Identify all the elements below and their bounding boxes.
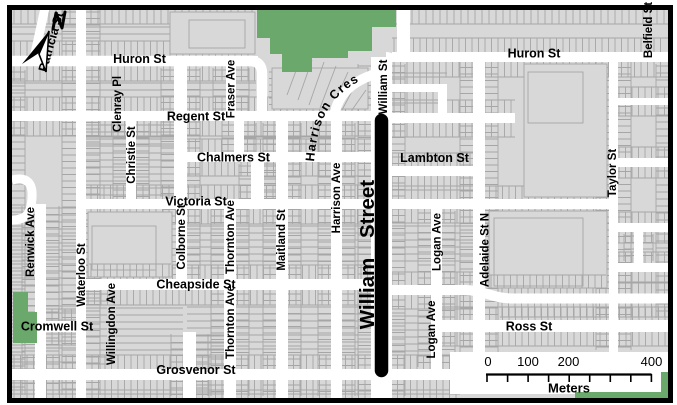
svg-text:Ross St: Ross St: [506, 320, 553, 334]
svg-text:Thornton Ave: Thornton Ave: [225, 285, 237, 359]
svg-text:Clenray Pl: Clenray Pl: [112, 76, 124, 132]
svg-text:Grosvenor St: Grosvenor St: [156, 363, 236, 377]
svg-text:Christie St: Christie St: [126, 126, 138, 184]
svg-text:Meters: Meters: [548, 381, 590, 396]
svg-text:William St: William St: [378, 59, 390, 114]
svg-text:Huron St: Huron St: [113, 52, 167, 66]
svg-text:Renwick Ave: Renwick Ave: [25, 207, 37, 277]
svg-text:200: 200: [558, 354, 580, 369]
svg-text:Adelaide St N: Adelaide St N: [480, 213, 492, 287]
svg-text:Willingdon Ave: Willingdon Ave: [106, 283, 118, 365]
svg-text:Logan Ave: Logan Ave: [426, 301, 438, 359]
svg-text:Harrison Ave: Harrison Ave: [331, 163, 343, 234]
svg-text:Belfield St: Belfield St: [643, 2, 655, 58]
svg-text:Colborne St: Colborne St: [176, 204, 188, 269]
svg-text:Victoria St: Victoria St: [165, 195, 227, 209]
svg-text:Maitland St: Maitland St: [276, 209, 288, 271]
svg-text:Fraser Ave: Fraser Ave: [226, 60, 238, 119]
svg-text:0: 0: [484, 354, 491, 369]
svg-text:Thornton Ave: Thornton Ave: [225, 200, 237, 274]
svg-text:Regent St: Regent St: [167, 110, 226, 124]
svg-text:400: 400: [641, 354, 663, 369]
svg-text:Street: Street: [356, 180, 379, 238]
svg-text:William: William: [356, 258, 379, 330]
svg-text:Lambton St: Lambton St: [400, 151, 470, 165]
svg-text:Logan Ave: Logan Ave: [432, 213, 444, 271]
svg-text:Waterloo St: Waterloo St: [76, 243, 88, 307]
svg-text:Taylor St: Taylor St: [607, 149, 619, 198]
svg-text:Cromwell St: Cromwell St: [21, 320, 94, 334]
svg-text:Chalmers St: Chalmers St: [197, 151, 271, 165]
svg-text:100: 100: [517, 354, 539, 369]
svg-text:Huron St: Huron St: [508, 47, 562, 61]
